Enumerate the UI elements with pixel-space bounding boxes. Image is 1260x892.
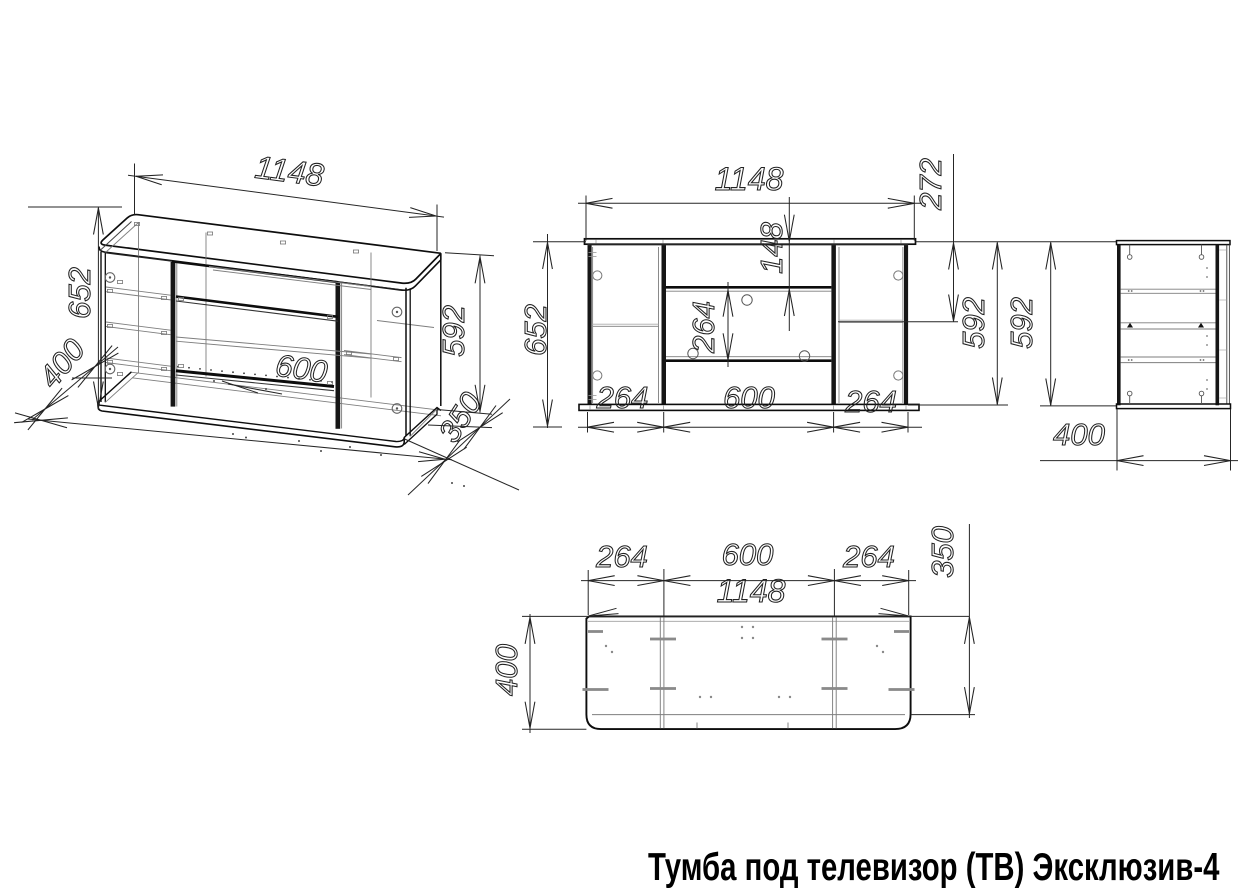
svg-text:148: 148 <box>754 221 789 273</box>
svg-text:264: 264 <box>844 384 897 419</box>
svg-text:652: 652 <box>518 304 553 356</box>
svg-text:592: 592 <box>956 297 991 349</box>
svg-text:264: 264 <box>686 301 721 354</box>
svg-text:592: 592 <box>436 305 471 357</box>
svg-text:600: 600 <box>722 537 774 572</box>
svg-text:592: 592 <box>1004 297 1039 349</box>
svg-text:1148: 1148 <box>715 161 784 197</box>
svg-text:652: 652 <box>62 267 97 319</box>
svg-text:272: 272 <box>913 158 948 211</box>
svg-text:264: 264 <box>595 539 648 574</box>
svg-text:264: 264 <box>596 380 649 415</box>
svg-text:400: 400 <box>32 332 92 394</box>
svg-text:350: 350 <box>925 526 960 578</box>
svg-text:400: 400 <box>489 644 524 696</box>
svg-text:400: 400 <box>1053 417 1105 452</box>
svg-text:600: 600 <box>273 348 329 390</box>
svg-text:Тумба под телевизор (ТВ) Экскл: Тумба под телевизор (ТВ) Эксклюзив-4 <box>648 846 1219 889</box>
svg-text:600: 600 <box>723 380 775 415</box>
svg-text:264: 264 <box>842 539 895 574</box>
svg-text:1148: 1148 <box>253 149 326 194</box>
svg-text:1148: 1148 <box>717 573 786 609</box>
